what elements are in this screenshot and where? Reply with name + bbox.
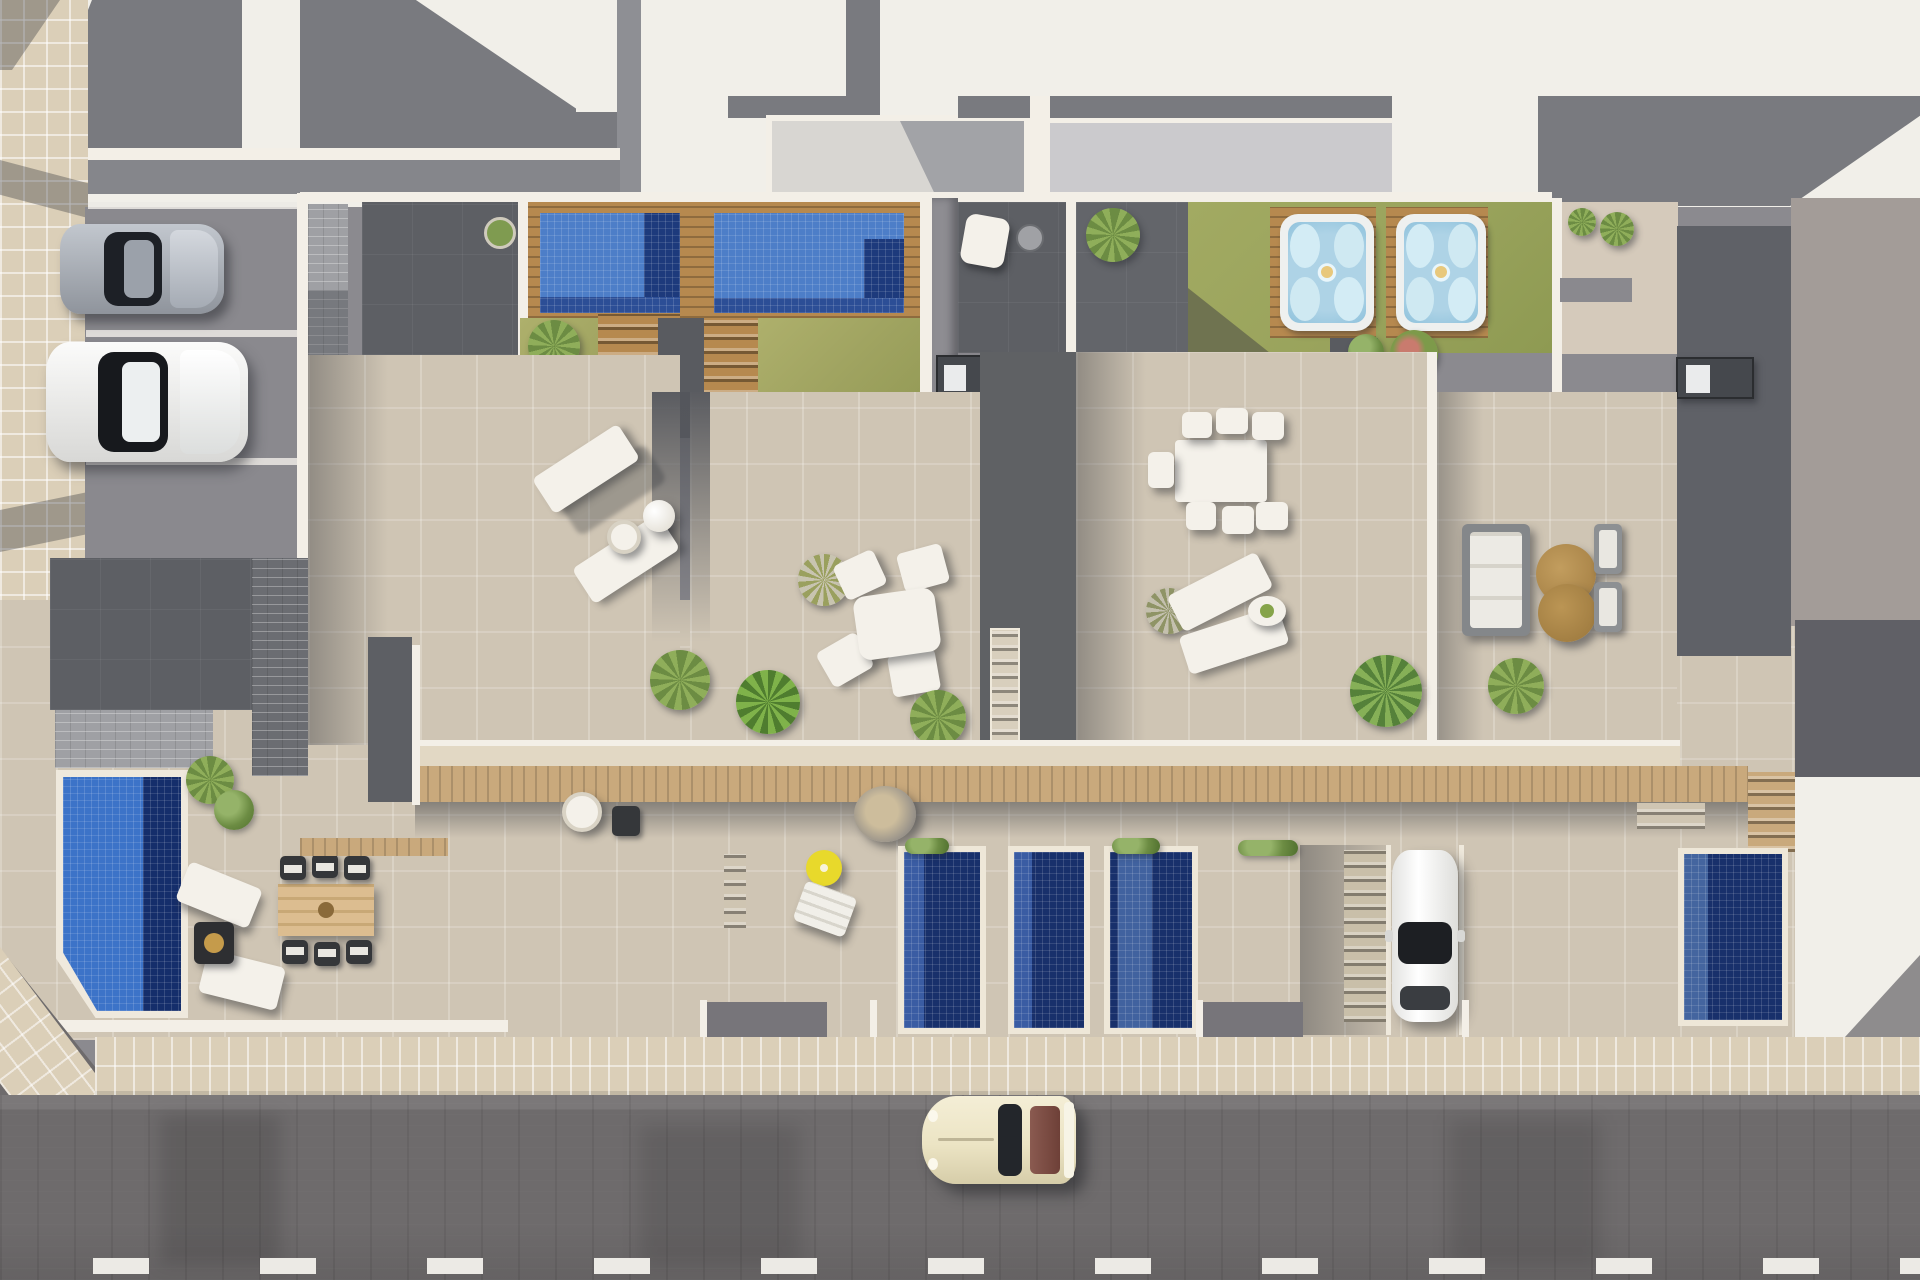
bbq-sink-4 bbox=[1686, 365, 1710, 393]
court-wall-a bbox=[412, 645, 420, 805]
cream-car bbox=[922, 1096, 1076, 1184]
entry-shadow-1 bbox=[707, 1002, 827, 1037]
hot-tub-2 bbox=[1396, 214, 1486, 331]
lane-dash-8 bbox=[1262, 1258, 1318, 1274]
lane-dash-10 bbox=[1596, 1258, 1652, 1274]
bl-chair-t1 bbox=[280, 856, 306, 880]
terrace-3-palm bbox=[1350, 655, 1422, 727]
bl-chair-b1 bbox=[282, 940, 308, 964]
armchair-4a bbox=[1594, 524, 1622, 574]
lane-dash-9 bbox=[1429, 1258, 1485, 1274]
bl-pool-water bbox=[63, 777, 181, 1011]
hot-tub-1-water bbox=[1288, 222, 1366, 323]
court-dark-strip bbox=[368, 637, 412, 802]
bl-fire-table bbox=[194, 922, 234, 964]
chair-3c bbox=[1252, 412, 1284, 440]
bl-wood-edge bbox=[300, 838, 448, 856]
parasol-table bbox=[959, 213, 1011, 270]
hot-tub-2-water bbox=[1404, 222, 1478, 323]
side-table-1 bbox=[607, 520, 641, 554]
street-patch-1 bbox=[160, 1115, 280, 1265]
ground-table-round bbox=[562, 792, 602, 832]
parking-line-1 bbox=[88, 202, 300, 209]
lane-dash-1 bbox=[93, 1258, 149, 1274]
patio-disc bbox=[1016, 224, 1044, 252]
cream-car-headlight-2 bbox=[928, 1158, 938, 1170]
bl-dark-block bbox=[50, 558, 252, 710]
lane-dash-4 bbox=[594, 1258, 650, 1274]
ground-stair-2 bbox=[1344, 850, 1388, 1022]
pool-hedge-3 bbox=[1238, 840, 1298, 856]
ground-stair-1 bbox=[724, 854, 746, 928]
bbq-sink-2 bbox=[944, 365, 966, 391]
white-car-windshield bbox=[1398, 922, 1452, 964]
cream-car-headlight-1 bbox=[928, 1110, 938, 1122]
white-car-roof bbox=[122, 362, 160, 442]
chair-3d bbox=[1186, 502, 1216, 530]
chair-3f bbox=[1256, 502, 1288, 530]
divider-3-4 bbox=[1427, 352, 1437, 745]
wall-face bbox=[85, 160, 620, 194]
parapet-gap bbox=[1030, 96, 1050, 206]
white-car-mirror-r bbox=[1457, 930, 1465, 942]
oval-table-plant bbox=[1260, 604, 1274, 618]
oval-table-3 bbox=[1248, 596, 1286, 626]
parapet-line-left bbox=[85, 148, 620, 160]
white-car-mirror-l bbox=[1385, 930, 1393, 942]
chair-3b bbox=[1216, 408, 1248, 434]
lane-dash-5 bbox=[761, 1258, 817, 1274]
pool-hedge-2 bbox=[1112, 838, 1160, 854]
silver-car-hood bbox=[170, 230, 218, 308]
bl-chair-t2 bbox=[312, 854, 338, 878]
sidewalk-midline bbox=[95, 1065, 1920, 1067]
parasol-ball-1 bbox=[643, 500, 675, 532]
plunge-pool-3 bbox=[1104, 846, 1198, 1034]
sidewalk-band bbox=[95, 1037, 1920, 1095]
entry-wall-2 bbox=[870, 1000, 877, 1037]
white-car-hood bbox=[180, 350, 240, 454]
hot-tub-1 bbox=[1280, 214, 1374, 331]
cream-car-windshield bbox=[998, 1104, 1022, 1176]
bl-plant-2 bbox=[214, 790, 254, 830]
street-patch-2 bbox=[640, 1125, 800, 1265]
armchair-4b bbox=[1594, 582, 1622, 632]
bl-fire-bowl bbox=[204, 933, 224, 953]
dark-column-right bbox=[1677, 226, 1791, 656]
panel-shadow bbox=[900, 121, 1024, 199]
bl-pool bbox=[56, 770, 188, 1018]
bl-dark-column bbox=[252, 558, 308, 776]
silver-car-roof bbox=[124, 240, 154, 298]
coffee-table-4b bbox=[1538, 584, 1596, 642]
building-right-shadow bbox=[1795, 620, 1920, 777]
bl-curb bbox=[22, 1020, 508, 1032]
cream-car-engine-lid bbox=[1030, 1106, 1060, 1174]
roof-pool-1 bbox=[540, 213, 680, 313]
garden-sofa-4 bbox=[1462, 524, 1530, 636]
tree-planter-circle bbox=[484, 217, 516, 249]
lane-dash-11 bbox=[1763, 1258, 1819, 1274]
terrace-4-plant bbox=[1488, 658, 1544, 714]
pool-1-shadow-bottom bbox=[540, 297, 680, 313]
pool-2-shadow-bottom bbox=[714, 298, 904, 313]
plunge-pool-1-water bbox=[904, 852, 980, 1028]
cream-car-hood-line bbox=[938, 1138, 994, 1141]
bl-chair-b2 bbox=[314, 942, 340, 966]
roof-shadow-band bbox=[617, 0, 641, 194]
palm-patio-3 bbox=[1086, 208, 1140, 262]
lawn-2 bbox=[758, 318, 922, 392]
plunge-pool-1 bbox=[898, 846, 986, 1034]
pergola-walkway bbox=[415, 766, 1748, 802]
terrace-2-palm-3 bbox=[910, 690, 966, 746]
entry-shadow-2 bbox=[1203, 1002, 1303, 1037]
palm-small-2 bbox=[1600, 212, 1634, 246]
entry-wall-4 bbox=[1462, 1000, 1469, 1037]
entry-wall-1 bbox=[700, 1000, 707, 1037]
chair-3e bbox=[1222, 506, 1254, 534]
bbq-counter-4 bbox=[1676, 357, 1754, 399]
hanging-chair bbox=[854, 786, 916, 842]
bl-chair-t3 bbox=[344, 856, 370, 880]
street-patch-3 bbox=[1450, 1120, 1600, 1265]
ground-chair-dark bbox=[612, 806, 640, 836]
bl-chair-b3 bbox=[346, 940, 372, 964]
aerial-render bbox=[0, 0, 1920, 1280]
white-hatchback bbox=[46, 342, 248, 462]
dining-table-3 bbox=[1175, 440, 1267, 502]
plunge-pool-4-water bbox=[1684, 854, 1782, 1020]
roof-shadow-strip bbox=[958, 96, 1392, 118]
terrace-2-palm-1 bbox=[650, 650, 710, 710]
silver-car bbox=[60, 224, 224, 314]
sofa-cushions bbox=[1470, 532, 1522, 628]
plunge-pool-2 bbox=[1008, 846, 1090, 1034]
white-car-rear-glass bbox=[1400, 986, 1450, 1010]
warm-column-right bbox=[1791, 198, 1920, 626]
entry-wall-3 bbox=[1196, 1000, 1203, 1037]
white-car-driveway bbox=[1392, 850, 1458, 1022]
pool-hedge-1 bbox=[905, 838, 949, 854]
ground-stair-3 bbox=[1637, 803, 1705, 829]
lane-dash-7 bbox=[1095, 1258, 1151, 1274]
plunge-pool-3-water bbox=[1110, 852, 1192, 1028]
chair-3a bbox=[1182, 412, 1212, 438]
parking-line-2 bbox=[86, 330, 300, 337]
roof-pool-2 bbox=[714, 213, 904, 313]
parapet-front-band bbox=[415, 746, 1680, 766]
lane-dash-2 bbox=[260, 1258, 316, 1274]
cream-car-bumper bbox=[1064, 1102, 1074, 1178]
terrace-2-palm-2 bbox=[736, 670, 800, 734]
yellow-parasol bbox=[806, 850, 842, 886]
step-notch bbox=[1560, 278, 1632, 302]
palm-small-1 bbox=[1568, 208, 1596, 236]
pergola-stair-corner bbox=[1748, 772, 1800, 852]
dark-patio-2 bbox=[958, 202, 1066, 353]
terrace-3-shadow bbox=[1076, 352, 1146, 745]
dining-table-2 bbox=[852, 587, 942, 662]
lane-dash-6 bbox=[928, 1258, 984, 1274]
lane-dash-3 bbox=[427, 1258, 483, 1274]
bl-cobble bbox=[55, 710, 213, 768]
lane-dash-12 bbox=[1900, 1258, 1920, 1274]
chair-3g bbox=[1148, 452, 1174, 488]
bl-dining-table bbox=[278, 884, 374, 936]
roof-shadow-vert bbox=[846, 0, 880, 96]
plunge-pool-4 bbox=[1678, 848, 1788, 1026]
plunge-pool-2-water bbox=[1014, 852, 1084, 1028]
